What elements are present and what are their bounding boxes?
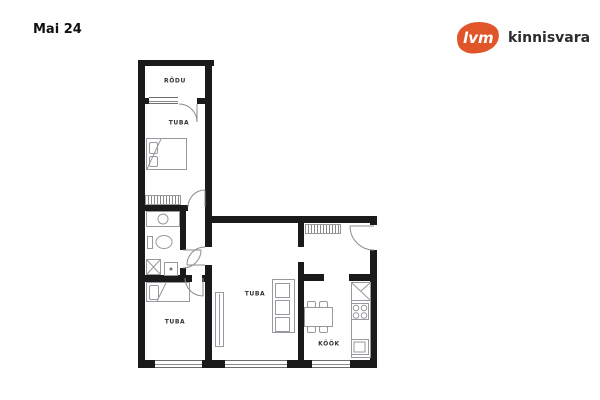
shower-cross-line <box>147 260 160 274</box>
door-arc <box>350 226 374 250</box>
door-arc <box>185 278 203 296</box>
stove-burner-icon <box>353 305 359 311</box>
room-label-tuba-living: TUBA <box>245 291 266 298</box>
sink-inner-rect <box>354 342 365 352</box>
bed-fold-line <box>157 283 166 301</box>
floor-plan: RÕDU TUBA TUBA TUBA KÖÖK <box>0 0 600 400</box>
room-label-kook: KÖÖK <box>318 341 340 348</box>
floor-plan-page: Mai 24 lvm kinnisvara <box>0 0 600 400</box>
fridge-diagonal <box>352 283 370 300</box>
room-label-rodu: RÕDU <box>164 78 186 85</box>
bed-fold-line <box>147 139 161 169</box>
doors-and-details-layer <box>0 0 600 400</box>
door-arc <box>188 190 205 207</box>
room-label-tuba-top: TUBA <box>169 120 190 127</box>
toilet-bowl-icon <box>156 236 172 249</box>
stove-burner-icon <box>361 313 367 319</box>
stove-burner-icon <box>353 313 359 319</box>
room-label-tuba-bottom: TUBA <box>165 319 186 326</box>
sink-basin-icon <box>158 214 168 224</box>
washer-knob-icon <box>170 268 173 271</box>
stove-burner-icon <box>361 305 367 311</box>
